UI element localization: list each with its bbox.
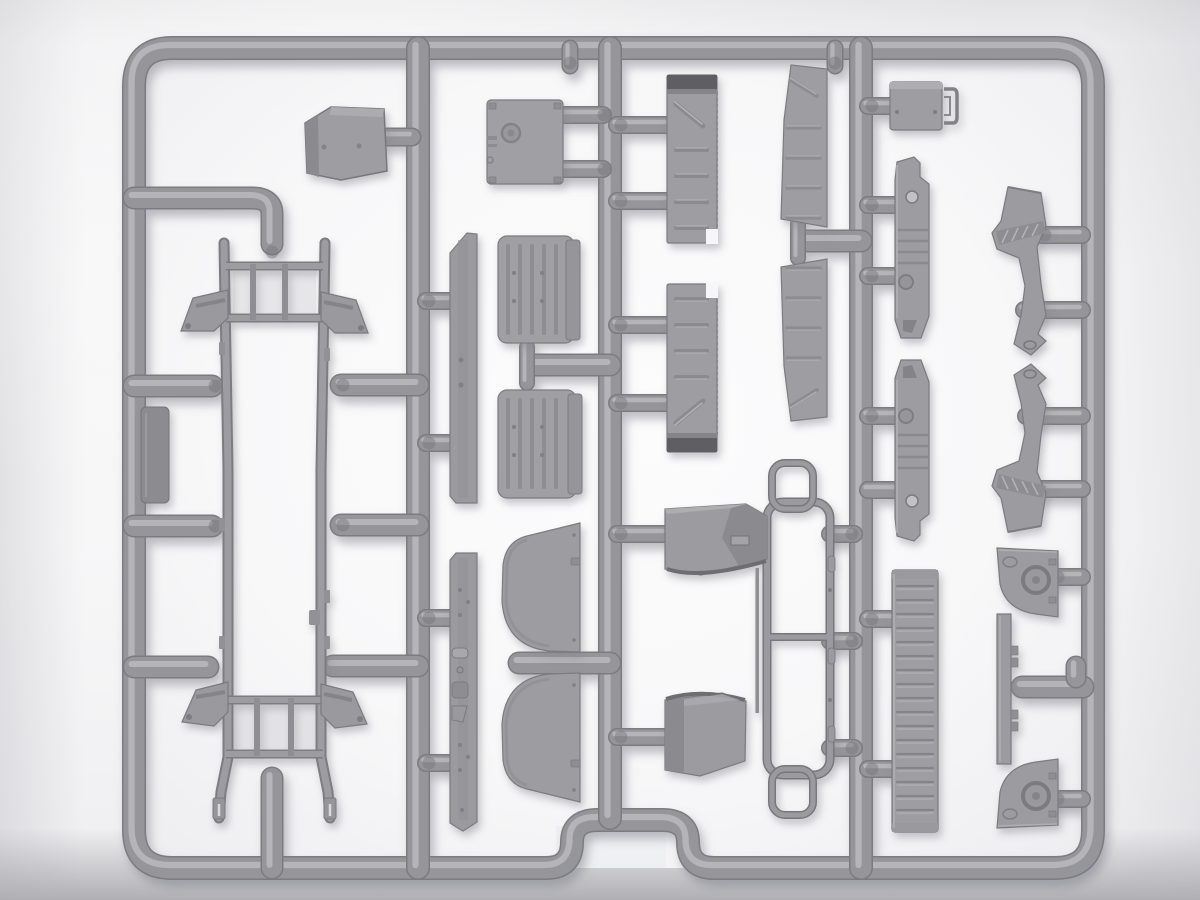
model-kit-sprue-scene — [0, 0, 1200, 900]
bed-panel-b — [667, 283, 718, 452]
floor-panel-b — [498, 390, 582, 498]
bracket-a — [895, 157, 929, 338]
firewall-plate — [487, 100, 563, 184]
cab-back-panel — [305, 107, 387, 180]
louver-panel — [892, 570, 938, 832]
seat-box-a — [665, 504, 767, 575]
bracket-b — [895, 360, 929, 541]
bed-side-b — [781, 259, 827, 421]
seat-box-b — [665, 693, 746, 776]
chassis-channel-a — [450, 233, 477, 503]
sprue-photo — [0, 0, 1200, 900]
mud-flap-plate — [141, 407, 169, 503]
floor-panel-a — [498, 236, 580, 343]
bed-side-a — [781, 65, 827, 227]
cab-door-b — [502, 673, 580, 802]
chassis-channel-b — [450, 553, 477, 831]
cab-door-a — [502, 523, 580, 652]
bed-panel-a — [667, 75, 718, 244]
